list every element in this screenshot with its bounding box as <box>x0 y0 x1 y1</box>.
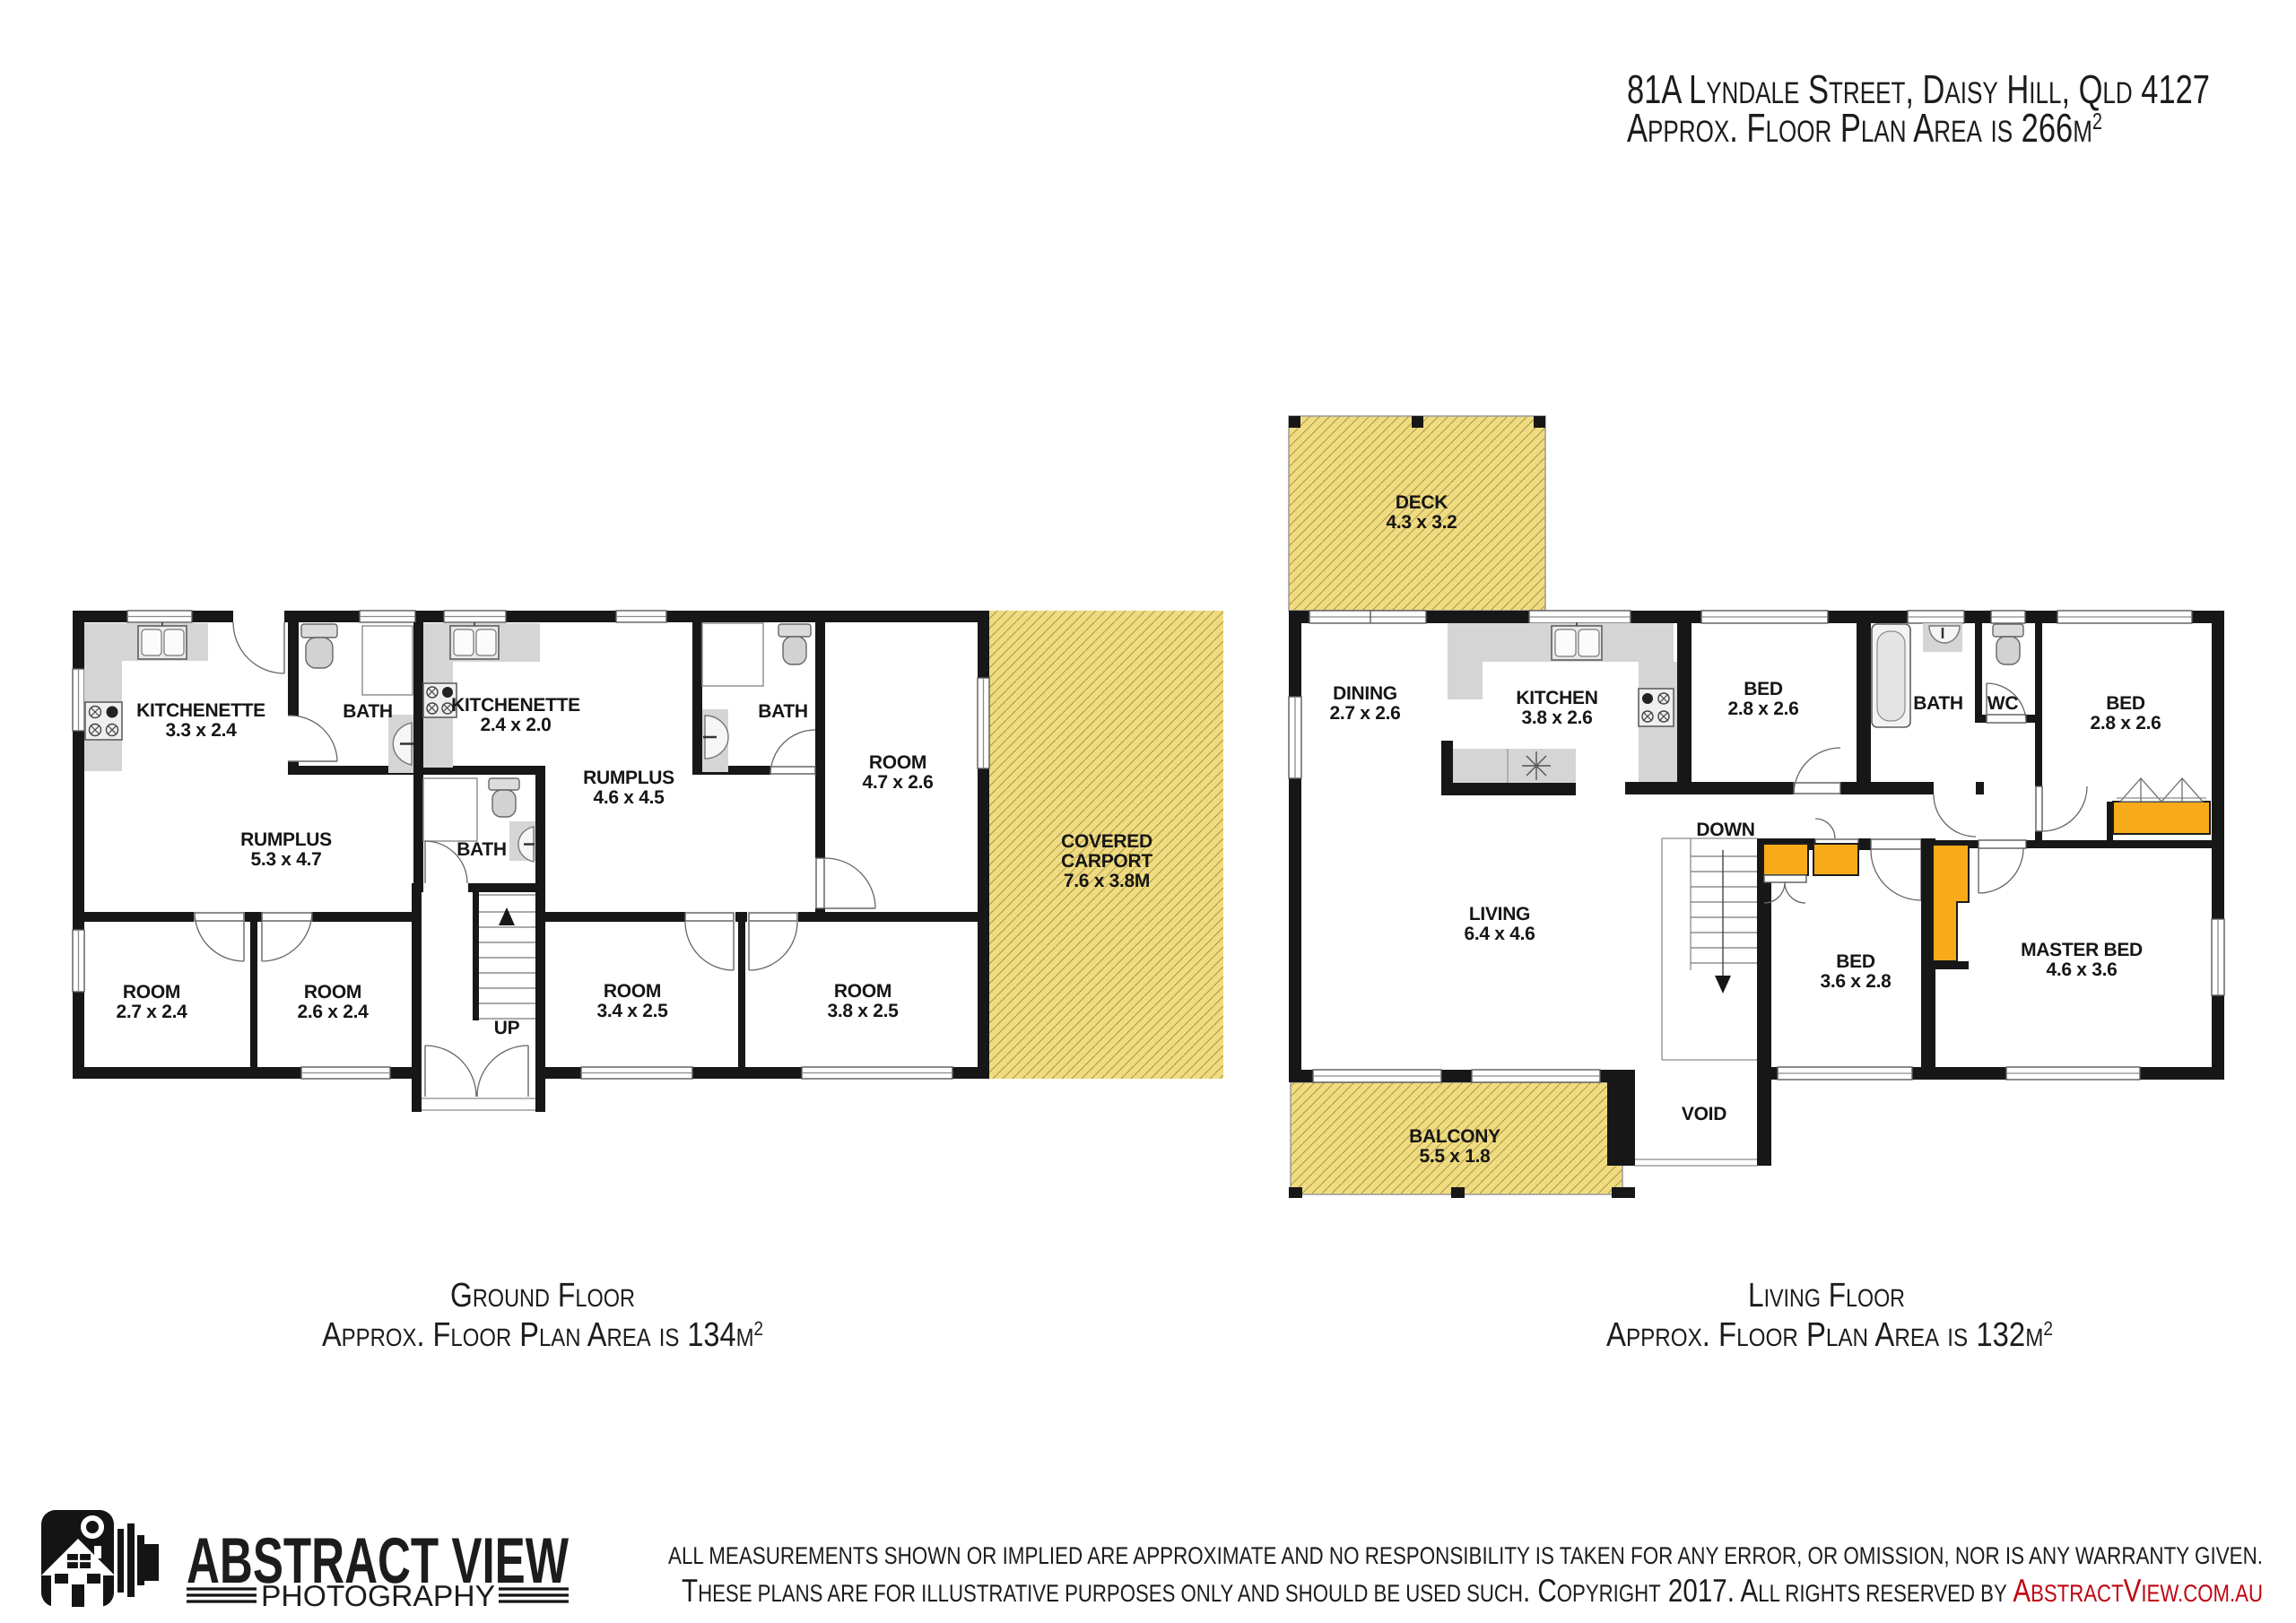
svg-text:ROOM: ROOM <box>604 981 661 1002</box>
svg-text:6.4 x 4.6: 6.4 x 4.6 <box>1464 924 1535 944</box>
svg-text:LIVING: LIVING <box>1469 904 1530 924</box>
svg-text:3.6 x 2.8: 3.6 x 2.8 <box>1820 971 1892 992</box>
svg-text:ROOM: ROOM <box>834 981 891 1002</box>
svg-text:KITCHEN: KITCHEN <box>1516 688 1597 708</box>
svg-text:RUMPLUS: RUMPLUS <box>583 768 674 788</box>
svg-text:CARPORT: CARPORT <box>1061 851 1152 872</box>
svg-text:4.6 x 4.5: 4.6 x 4.5 <box>593 787 665 808</box>
svg-text:7.6 x 3.8M: 7.6 x 3.8M <box>1064 871 1150 891</box>
svg-text:UP: UP <box>494 1018 520 1038</box>
svg-text:4.3 x 3.2: 4.3 x 3.2 <box>1386 512 1457 533</box>
svg-text:KITCHENETTE: KITCHENETTE <box>451 695 580 716</box>
svg-text:BALCONY: BALCONY <box>1409 1126 1500 1147</box>
svg-text:4.7 x 2.6: 4.7 x 2.6 <box>862 772 933 793</box>
svg-text:3.3 x 2.4: 3.3 x 2.4 <box>165 720 237 741</box>
svg-text:3.4 x 2.5: 3.4 x 2.5 <box>596 1001 668 1021</box>
svg-text:BATH: BATH <box>758 701 808 722</box>
svg-text:BATH: BATH <box>343 701 393 722</box>
svg-text:BED: BED <box>2106 693 2145 714</box>
svg-text:3.8 x 2.5: 3.8 x 2.5 <box>827 1001 899 1021</box>
svg-text:BATH: BATH <box>1913 693 1963 714</box>
svg-text:BED: BED <box>1836 951 1875 972</box>
svg-text:2.7 x 2.4: 2.7 x 2.4 <box>116 1002 187 1022</box>
svg-text:BATH: BATH <box>457 839 507 860</box>
svg-text:WC: WC <box>1987 693 2019 714</box>
svg-text:DINING: DINING <box>1333 683 1397 704</box>
svg-text:2.6 x 2.4: 2.6 x 2.4 <box>297 1002 369 1022</box>
svg-text:COVERED: COVERED <box>1061 831 1152 852</box>
svg-text:MASTER BED: MASTER BED <box>2021 940 2143 960</box>
svg-text:RUMPLUS: RUMPLUS <box>240 829 332 850</box>
svg-text:5.5 x 1.8: 5.5 x 1.8 <box>1419 1146 1491 1167</box>
svg-text:BED: BED <box>1744 679 1783 699</box>
svg-text:5.3 x 4.7: 5.3 x 4.7 <box>250 849 321 870</box>
svg-text:ALL MEASUREMENTS SHOWN OR IMPL: ALL MEASUREMENTS SHOWN OR IMPLIED ARE AP… <box>668 1542 2263 1569</box>
svg-text:PHOTOGRAPHY: PHOTOGRAPHY <box>261 1579 495 1612</box>
svg-text:2.8 x 2.6: 2.8 x 2.6 <box>1727 699 1798 719</box>
svg-text:DECK: DECK <box>1396 492 1448 513</box>
svg-text:ROOM: ROOM <box>304 982 361 1002</box>
svg-text:VOID: VOID <box>1682 1104 1726 1124</box>
svg-text:ROOM: ROOM <box>869 752 926 773</box>
svg-text:DOWN: DOWN <box>1696 820 1754 840</box>
svg-text:3.8 x 2.6: 3.8 x 2.6 <box>1521 707 1592 728</box>
svg-text:4.6 x 3.6: 4.6 x 3.6 <box>2046 959 2117 980</box>
svg-text:KITCHENETTE: KITCHENETTE <box>136 700 265 721</box>
svg-text:2.8 x 2.6: 2.8 x 2.6 <box>2090 713 2161 733</box>
svg-text:2.4 x 2.0: 2.4 x 2.0 <box>480 715 551 735</box>
svg-text:ROOM: ROOM <box>123 982 180 1002</box>
svg-text:2.7 x 2.6: 2.7 x 2.6 <box>1329 703 1400 724</box>
